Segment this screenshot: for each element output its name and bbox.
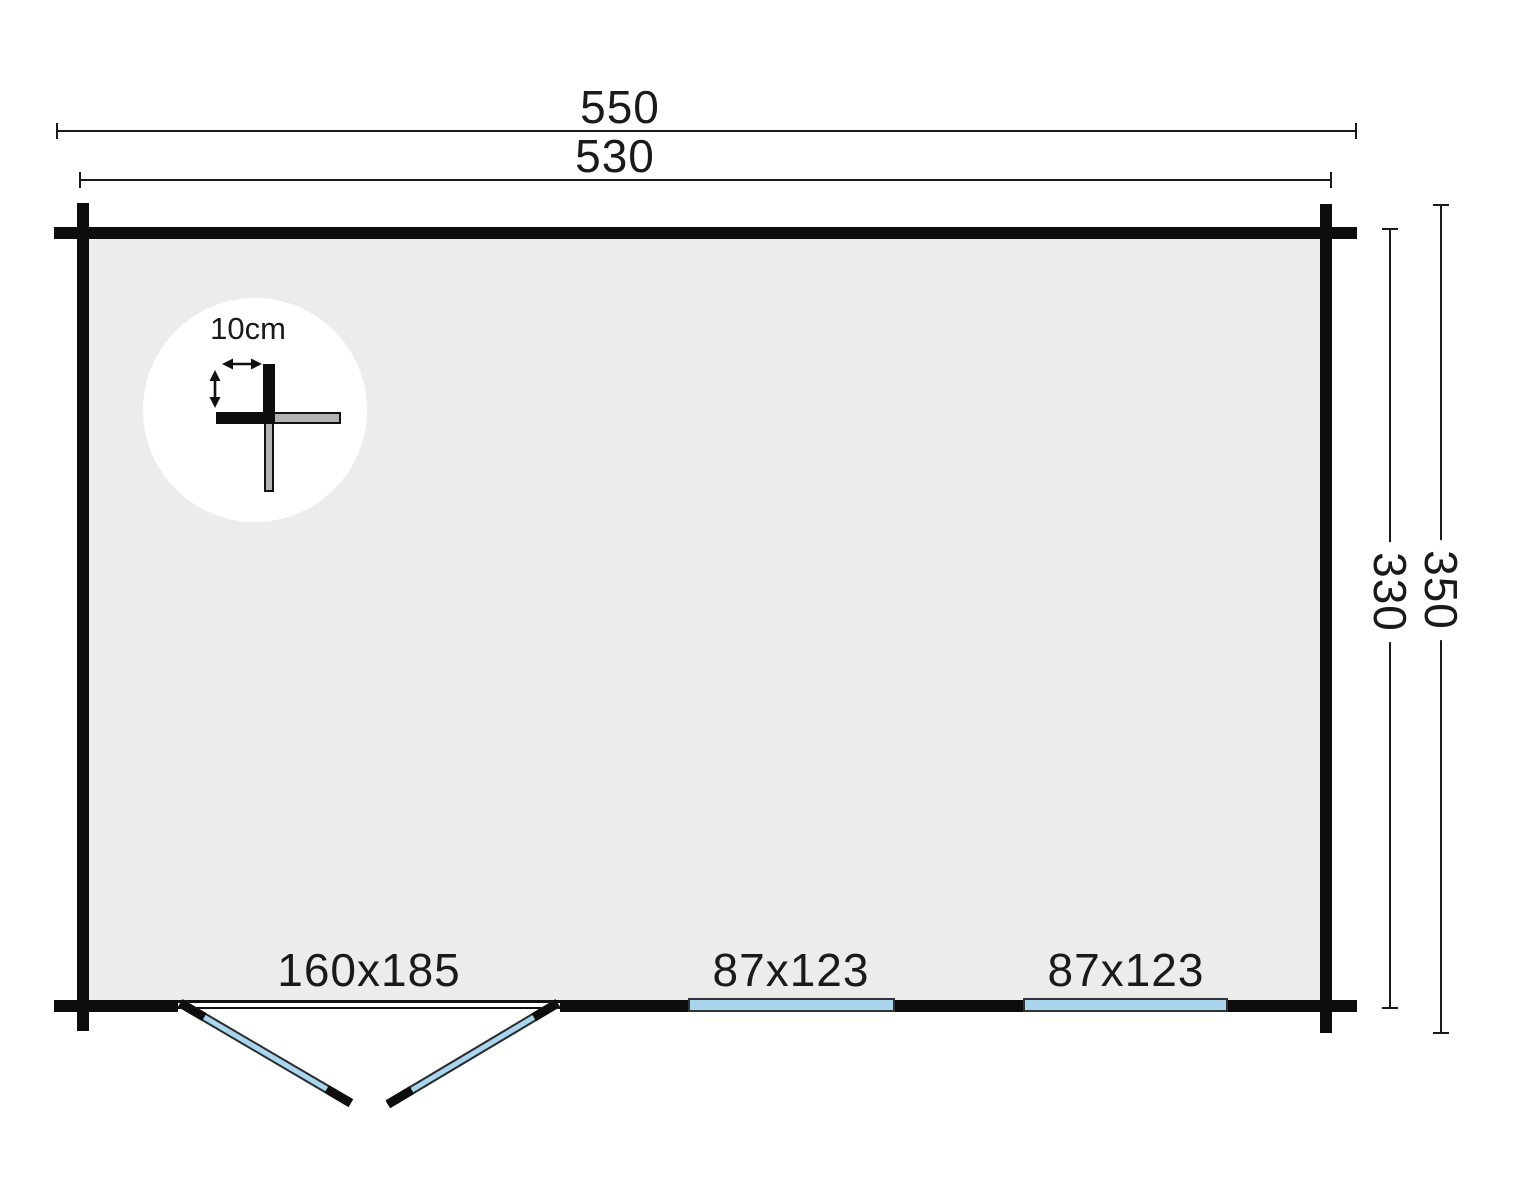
dim-tick [1330, 172, 1332, 188]
door-size-label: 160x185 [219, 947, 519, 993]
log-end-vertical [264, 422, 274, 492]
dim-tick [1433, 204, 1449, 206]
window-right-size-label: 87x123 [976, 947, 1276, 993]
door-leaf-left [179, 1000, 353, 1107]
wall-bottom-right-segment [560, 1000, 1357, 1012]
floor-plan: 550 530 160x185 87x123 87x123 330 350 10… [0, 0, 1536, 1193]
door-threshold [178, 1000, 560, 1009]
wall-top [54, 227, 1357, 239]
door-leaf-right [386, 1000, 559, 1108]
wall-thickness-label: 10cm [178, 312, 318, 346]
outer-depth-label: 350 [1416, 540, 1466, 640]
window-left-size-label: 87x123 [641, 947, 941, 993]
dim-tick [1382, 1007, 1398, 1009]
window-right [1023, 998, 1228, 1012]
door-edge-cap [385, 1086, 414, 1108]
wall-left [77, 203, 89, 1031]
inner-depth-label: 330 [1365, 542, 1415, 642]
dim-tick [56, 123, 58, 139]
inner-width-dim-line [79, 179, 1332, 181]
dim-tick [1355, 123, 1357, 139]
outer-width-dim-line [56, 130, 1357, 132]
wall-detail-bubble: 10cm [143, 298, 367, 522]
dim-tick [1433, 1032, 1449, 1034]
dim-tick [79, 172, 81, 188]
window-left [688, 998, 895, 1012]
inner-width-label: 530 [465, 133, 765, 179]
door-edge-cap [324, 1085, 353, 1107]
measure-arrows-icon [203, 354, 273, 424]
wall-bottom-left-segment [54, 1000, 178, 1012]
wall-right [1320, 204, 1332, 1033]
outer-width-label: 550 [470, 84, 770, 130]
log-end-horizontal [271, 412, 341, 424]
dim-tick [1382, 228, 1398, 230]
